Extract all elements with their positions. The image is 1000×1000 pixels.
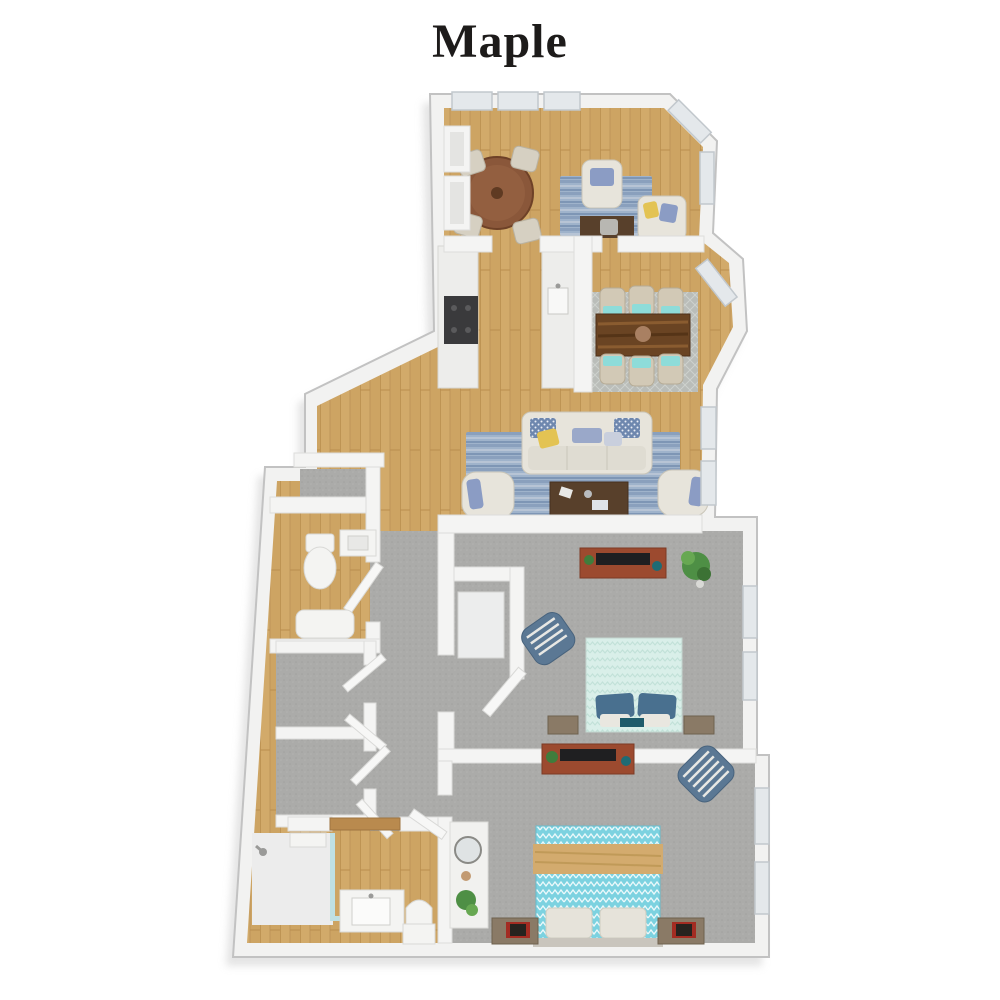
den-wall-shelves — [444, 126, 470, 230]
sofa-pillow-lavender — [572, 428, 602, 443]
den-window-3 — [544, 92, 580, 110]
shower-glass — [330, 833, 335, 921]
bed2-footboard — [533, 938, 663, 947]
dining-chairs-bottom — [600, 354, 683, 386]
kitchen-counter-right — [542, 246, 576, 388]
living-window-2 — [701, 461, 716, 505]
den-desk-chair — [600, 219, 618, 235]
den-window-2 — [498, 92, 538, 110]
bedroom1-window-1 — [743, 586, 757, 638]
coffee-table — [550, 482, 628, 520]
bedroom1-nightstand-right — [684, 716, 714, 734]
living-armchair-left — [462, 472, 514, 518]
bedroom1-tv — [596, 553, 650, 565]
bedroom2-dresser — [542, 744, 634, 774]
bed1-pillow-white-right — [640, 714, 670, 727]
bathroom-shelf — [290, 833, 326, 847]
faucet — [556, 284, 561, 289]
floorplan-page: Maple — [0, 0, 1000, 1000]
den-armchair — [582, 160, 622, 208]
floorplan — [0, 0, 1000, 1000]
bedroom2-tv — [560, 749, 616, 761]
living-window-1 — [701, 407, 716, 449]
bathroom-toilet — [403, 900, 435, 944]
kitchen-sink — [548, 288, 568, 314]
dining-centerpiece — [635, 326, 651, 342]
vanity-mirror — [455, 837, 481, 863]
bed2-throw — [533, 844, 663, 874]
bedroom2-window-2 — [755, 862, 769, 914]
coffee-table-book — [592, 500, 608, 510]
bed2-pillow-right — [600, 908, 646, 938]
bedroom2-window-1 — [755, 788, 769, 844]
bedroom1-nightstand-left — [548, 716, 578, 734]
bedroom1-dresser — [580, 548, 666, 578]
powder-tub — [296, 610, 354, 638]
closet-dresser — [458, 592, 504, 658]
bedroom1-window-2 — [743, 652, 757, 700]
powder-sink — [348, 536, 368, 550]
table-centerpiece — [491, 187, 503, 199]
bedroom1-bed — [586, 638, 682, 732]
bedroom2-vanity-desk — [450, 822, 488, 928]
bathroom-door — [330, 818, 400, 830]
bedroom2-nightstand-left — [492, 918, 538, 944]
bed2-pillow-left — [546, 908, 592, 938]
dining-chairs-top — [600, 286, 683, 318]
bed1-accent-pillow — [620, 718, 644, 727]
bedroom2-bed — [533, 826, 663, 947]
room-dining — [586, 286, 698, 392]
sofa — [522, 412, 652, 474]
sofa-pillow-light — [604, 432, 622, 446]
powder-toilet — [304, 534, 336, 589]
bedroom2-nightstand-right — [658, 918, 704, 944]
range — [444, 296, 478, 344]
bathroom-vanity — [340, 890, 404, 932]
den-side-window — [700, 152, 714, 204]
den-loveseat — [638, 196, 686, 240]
den-window-1 — [452, 92, 492, 110]
